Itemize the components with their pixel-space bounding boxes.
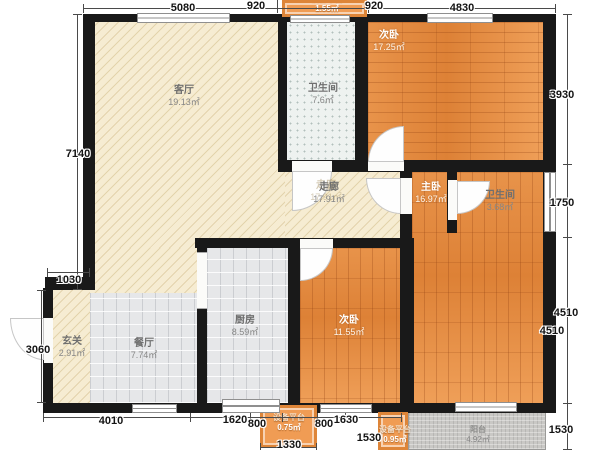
label-kitchen: 厨房8.59㎡ xyxy=(232,314,259,339)
dim-bottom-1530: 1530 xyxy=(357,432,381,444)
dim-top-4830: 4830 xyxy=(450,2,474,14)
wall xyxy=(278,20,287,162)
label-bedroom-top: 次卧17.25㎡ xyxy=(373,29,405,54)
dim-right-1750: 1750 xyxy=(550,197,574,209)
label-master-bedroom: 主卧16.97㎡ xyxy=(415,181,447,206)
dimension-tick xyxy=(277,0,278,13)
door-gap-bedroom-bottom xyxy=(300,239,333,248)
dimension-tick xyxy=(555,4,556,13)
dim-left-7140: 7140 xyxy=(66,148,90,160)
label-dining: 餐厅7.74㎡ xyxy=(131,337,158,362)
dim-left-3060: 3060 xyxy=(26,344,50,356)
window xyxy=(137,13,230,23)
label-living-room: 客厅19.13㎡ xyxy=(168,84,200,109)
dimension-tick xyxy=(37,290,46,291)
dimension-tick xyxy=(563,14,572,15)
window xyxy=(455,402,517,412)
dimension-line xyxy=(567,14,568,450)
dimension-tick xyxy=(316,443,317,450)
dim-right-1530: 1530 xyxy=(549,424,573,436)
door-gap-entry xyxy=(44,318,53,363)
dimension-tick xyxy=(563,403,572,404)
dimension-tick xyxy=(190,413,191,422)
door-gap-bedroom-top xyxy=(368,161,404,171)
dim-bottom-1630: 1630 xyxy=(334,414,358,426)
dim-bottom-4010: 4010 xyxy=(99,415,123,427)
dimension-tick xyxy=(401,413,402,422)
window xyxy=(222,399,280,413)
dimension-tick xyxy=(282,413,283,422)
label-foyer: 玄关2.91㎡ xyxy=(59,335,86,360)
window xyxy=(320,404,372,413)
window xyxy=(290,15,350,23)
dim-bottom-1330: 1330 xyxy=(277,439,301,450)
label-bedroom-bottom: 次卧11.55㎡ xyxy=(334,314,365,339)
dim-right-4510b: 4510 xyxy=(540,325,564,337)
window xyxy=(132,404,177,413)
wall xyxy=(355,20,368,162)
dimension-tick xyxy=(47,268,48,277)
door-gap-bath-main xyxy=(292,161,332,171)
door-gap-bath-master xyxy=(448,180,457,220)
dimension-line xyxy=(83,8,556,9)
dim-right-3930: 3930 xyxy=(550,89,574,101)
dimension-tick xyxy=(73,14,82,15)
dim-left-1030: 1030 xyxy=(57,274,81,286)
dimension-tick xyxy=(89,268,90,277)
dim-bottom-800a: 800 xyxy=(248,418,266,430)
room-hall-strip xyxy=(90,248,197,293)
dimension-tick xyxy=(73,289,82,290)
label-bathroom-master: 卫生间3.68㎡ xyxy=(485,189,515,214)
window xyxy=(427,13,493,23)
dimension-tick xyxy=(83,4,84,13)
door-gap-kitchen xyxy=(197,252,207,309)
dimension-tick xyxy=(563,237,572,238)
dimension-tick xyxy=(43,413,44,422)
dim-top-5080: 5080 xyxy=(171,2,195,14)
dim-top-920b: 920 xyxy=(365,0,383,12)
label-platform-right: 设备平台0.95㎡ xyxy=(379,425,411,446)
label-balcony: 阳台4.92㎡ xyxy=(466,425,490,446)
wall xyxy=(288,248,300,403)
wall xyxy=(400,238,414,403)
label-bathroom-main: 卫生间7.6㎡ xyxy=(308,82,338,107)
dim-bottom-800b: 800 xyxy=(315,418,333,430)
dimension-tick xyxy=(563,164,572,165)
room-living-room xyxy=(90,20,285,248)
dimension-line xyxy=(47,272,90,273)
dim-right-4510a: 4510 xyxy=(554,307,578,319)
dim-top-920a: 920 xyxy=(247,0,265,12)
label-hallway: 走廊17.91㎡ xyxy=(313,181,345,206)
door-gap-master xyxy=(401,178,412,214)
floor-plan: 设备平台 1.55㎡ 客厅19.13㎡ 走廊17.91㎡ 卫生间7.6㎡ 次卧1… xyxy=(0,0,600,450)
dim-bottom-1620: 1620 xyxy=(223,414,247,426)
dimension-tick xyxy=(260,443,261,450)
dimension-tick xyxy=(37,402,46,403)
